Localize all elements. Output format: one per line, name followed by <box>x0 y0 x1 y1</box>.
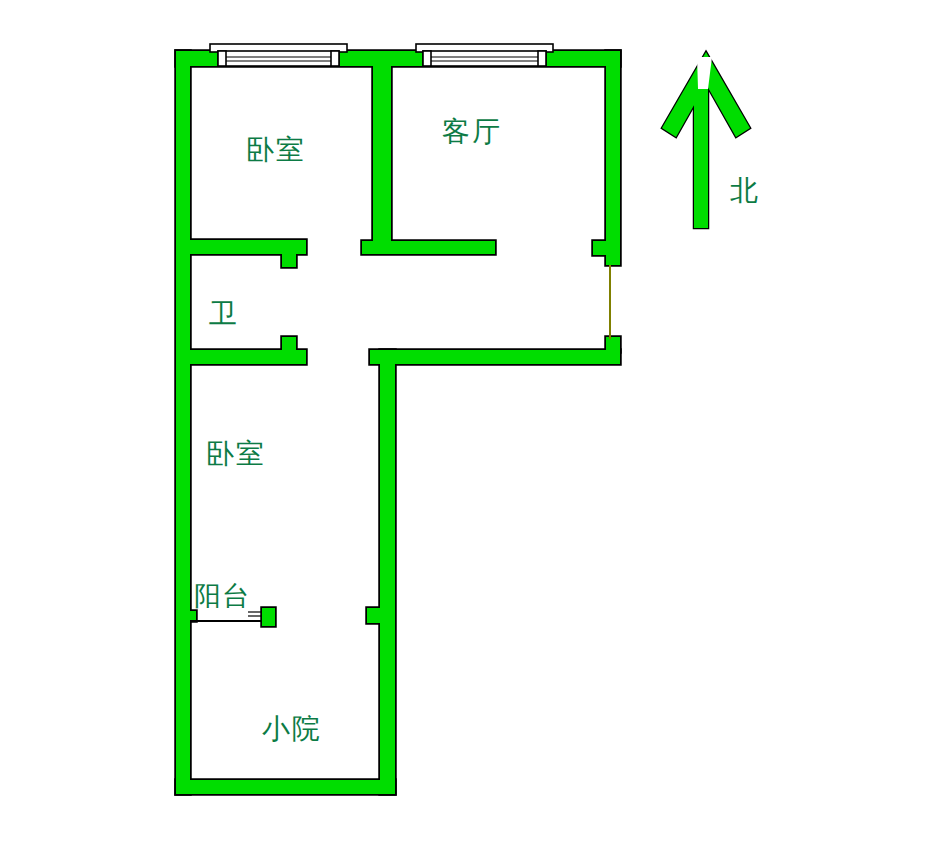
walls-outline-pass <box>176 51 620 794</box>
window-living-room <box>416 44 553 66</box>
room-label-bedroom-bottom: 卧室 <box>206 440 266 468</box>
room-label-living-room: 客厅 <box>442 118 502 146</box>
room-label-yard: 小院 <box>262 715 322 743</box>
window-post <box>538 51 546 66</box>
window-post <box>423 51 431 66</box>
window-bedroom-top <box>210 44 347 66</box>
room-label-balcony: 阳台 <box>194 582 250 609</box>
window-frame <box>423 51 546 66</box>
window-post <box>218 51 226 66</box>
room-label-bathroom: 卫 <box>209 300 239 328</box>
north-label: 北 <box>730 177 758 205</box>
walls-fill-pass <box>176 51 620 794</box>
floor-plan-canvas: 卧室 客厅 卫 卧室 阳台 小院 北 <box>0 0 943 860</box>
window-frame <box>218 51 339 66</box>
window-post <box>331 51 339 66</box>
room-label-bedroom-top: 卧室 <box>246 136 306 164</box>
balcony-rail <box>190 612 262 621</box>
